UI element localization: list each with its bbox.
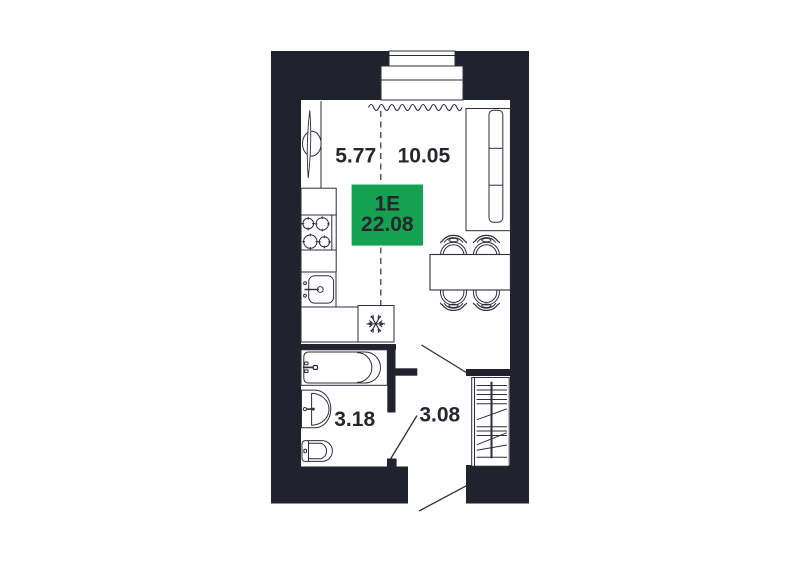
svg-text:5.77: 5.77 — [335, 144, 376, 167]
svg-text:1Е: 1Е — [374, 193, 400, 216]
svg-text:3.18: 3.18 — [334, 408, 375, 431]
svg-text:22.08: 22.08 — [361, 213, 414, 236]
svg-text:3.08: 3.08 — [419, 403, 460, 426]
svg-text:10.05: 10.05 — [398, 144, 451, 167]
